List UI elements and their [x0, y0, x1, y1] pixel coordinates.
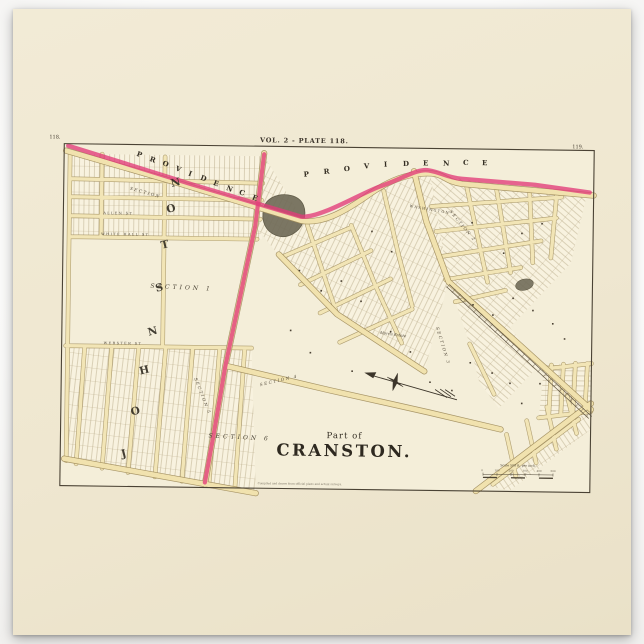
svg-text:O: O [343, 164, 350, 173]
svg-text:E: E [482, 158, 488, 167]
map-svg: VOL. 2 - PLATE 118. 118. 119. P R O V I … [38, 126, 605, 513]
scale-tick: 200 [509, 468, 514, 472]
svg-text:N: N [443, 159, 450, 168]
svg-text:C: C [463, 158, 469, 167]
street-allen: ALLEN ST [102, 211, 133, 215]
svg-text:Scale 500 ft. per inch.: Scale 500 ft. per inch. [500, 463, 536, 467]
page-background: { "poster": { "plate_label": "VOL. 2 - P… [0, 0, 644, 644]
scale-tick: 400 [537, 469, 542, 473]
scale-tick: 500 [551, 469, 556, 473]
svg-text:E: E [423, 158, 429, 167]
scale-tick: 100 [495, 468, 500, 472]
svg-text:R: R [323, 166, 330, 176]
page-number-left: 118. [49, 134, 61, 140]
street-webster: WEBSTER ST [104, 341, 143, 346]
street-white-hall: WHITE HALL ST [101, 232, 149, 237]
map-poster: VOL. 2 - PLATE 118. 118. 119. P R O V I … [13, 9, 631, 635]
page-number-right: 119. [572, 144, 584, 150]
svg-text:D: D [403, 159, 410, 168]
scale-tick: 300 [523, 469, 528, 473]
map-title-cranston: CRANSTON. [276, 440, 412, 461]
svg-text:P: P [303, 169, 310, 179]
plate-title: VOL. 2 - PLATE 118. [259, 136, 349, 145]
svg-text:I: I [384, 160, 388, 169]
map-title-part-of: Part of [326, 431, 362, 441]
svg-text:V: V [363, 161, 370, 170]
map-sheet: VOL. 2 - PLATE 118. 118. 119. P R O V I … [38, 126, 605, 513]
